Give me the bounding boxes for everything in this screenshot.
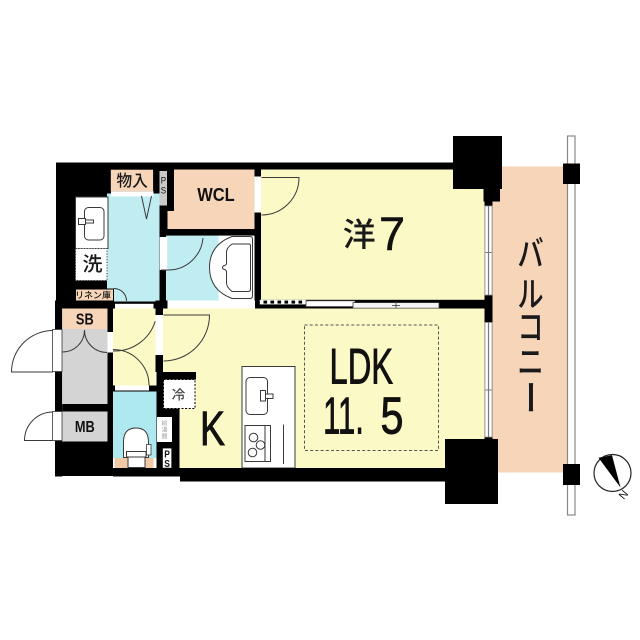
svg-text:5: 5 (381, 386, 404, 445)
svg-text:S: S (161, 185, 166, 196)
svg-text:WCL: WCL (197, 184, 235, 205)
svg-text:SB: SB (76, 311, 94, 329)
svg-text:MB: MB (75, 419, 95, 437)
svg-text:S: S (164, 458, 170, 469)
svg-text:7: 7 (379, 207, 405, 260)
svg-text:11.: 11. (323, 387, 364, 445)
svg-text:K: K (200, 403, 225, 457)
